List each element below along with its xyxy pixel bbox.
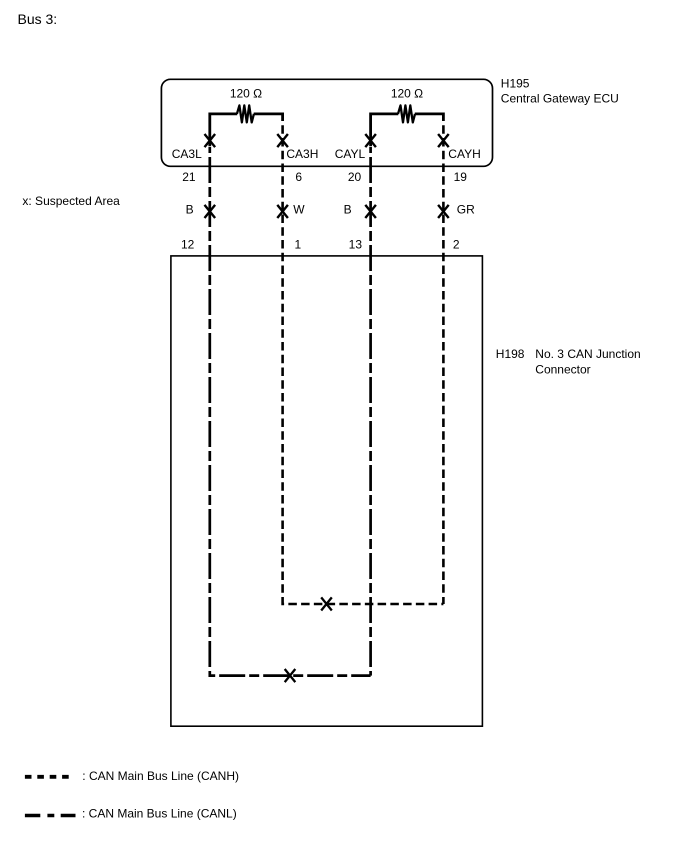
svg-text:Bus 3:: Bus 3: [18, 11, 58, 27]
svg-text:CAYL: CAYL [335, 147, 366, 161]
svg-text:20: 20 [348, 170, 362, 184]
svg-text:Connector: Connector [535, 362, 590, 376]
svg-text:CAYH: CAYH [448, 147, 480, 161]
svg-text:19: 19 [454, 170, 468, 184]
svg-text:H198: H198 [496, 347, 525, 361]
svg-text:6: 6 [295, 170, 302, 184]
svg-text:B: B [186, 202, 194, 216]
svg-text:12: 12 [181, 237, 195, 251]
svg-text:: CAN Main Bus Line (CANL): : CAN Main Bus Line (CANL) [82, 807, 237, 821]
svg-text:: CAN Main Bus Line (CANH): : CAN Main Bus Line (CANH) [82, 769, 239, 783]
svg-text:x: Suspected Area: x: Suspected Area [22, 194, 120, 208]
svg-text:120 Ω: 120 Ω [230, 87, 262, 101]
svg-text:Central Gateway ECU: Central Gateway ECU [501, 92, 619, 106]
svg-text:CA3L: CA3L [172, 147, 202, 161]
svg-text:2: 2 [453, 237, 460, 251]
svg-text:1: 1 [295, 237, 302, 251]
svg-text:CA3H: CA3H [286, 147, 318, 161]
svg-text:No. 3 CAN Junction: No. 3 CAN Junction [535, 347, 640, 361]
svg-text:H195: H195 [501, 76, 530, 90]
svg-text:120 Ω: 120 Ω [391, 87, 423, 101]
svg-text:W: W [293, 202, 305, 216]
svg-text:B: B [344, 202, 352, 216]
svg-text:13: 13 [349, 237, 363, 251]
svg-text:21: 21 [182, 170, 196, 184]
svg-text:GR: GR [457, 202, 475, 216]
